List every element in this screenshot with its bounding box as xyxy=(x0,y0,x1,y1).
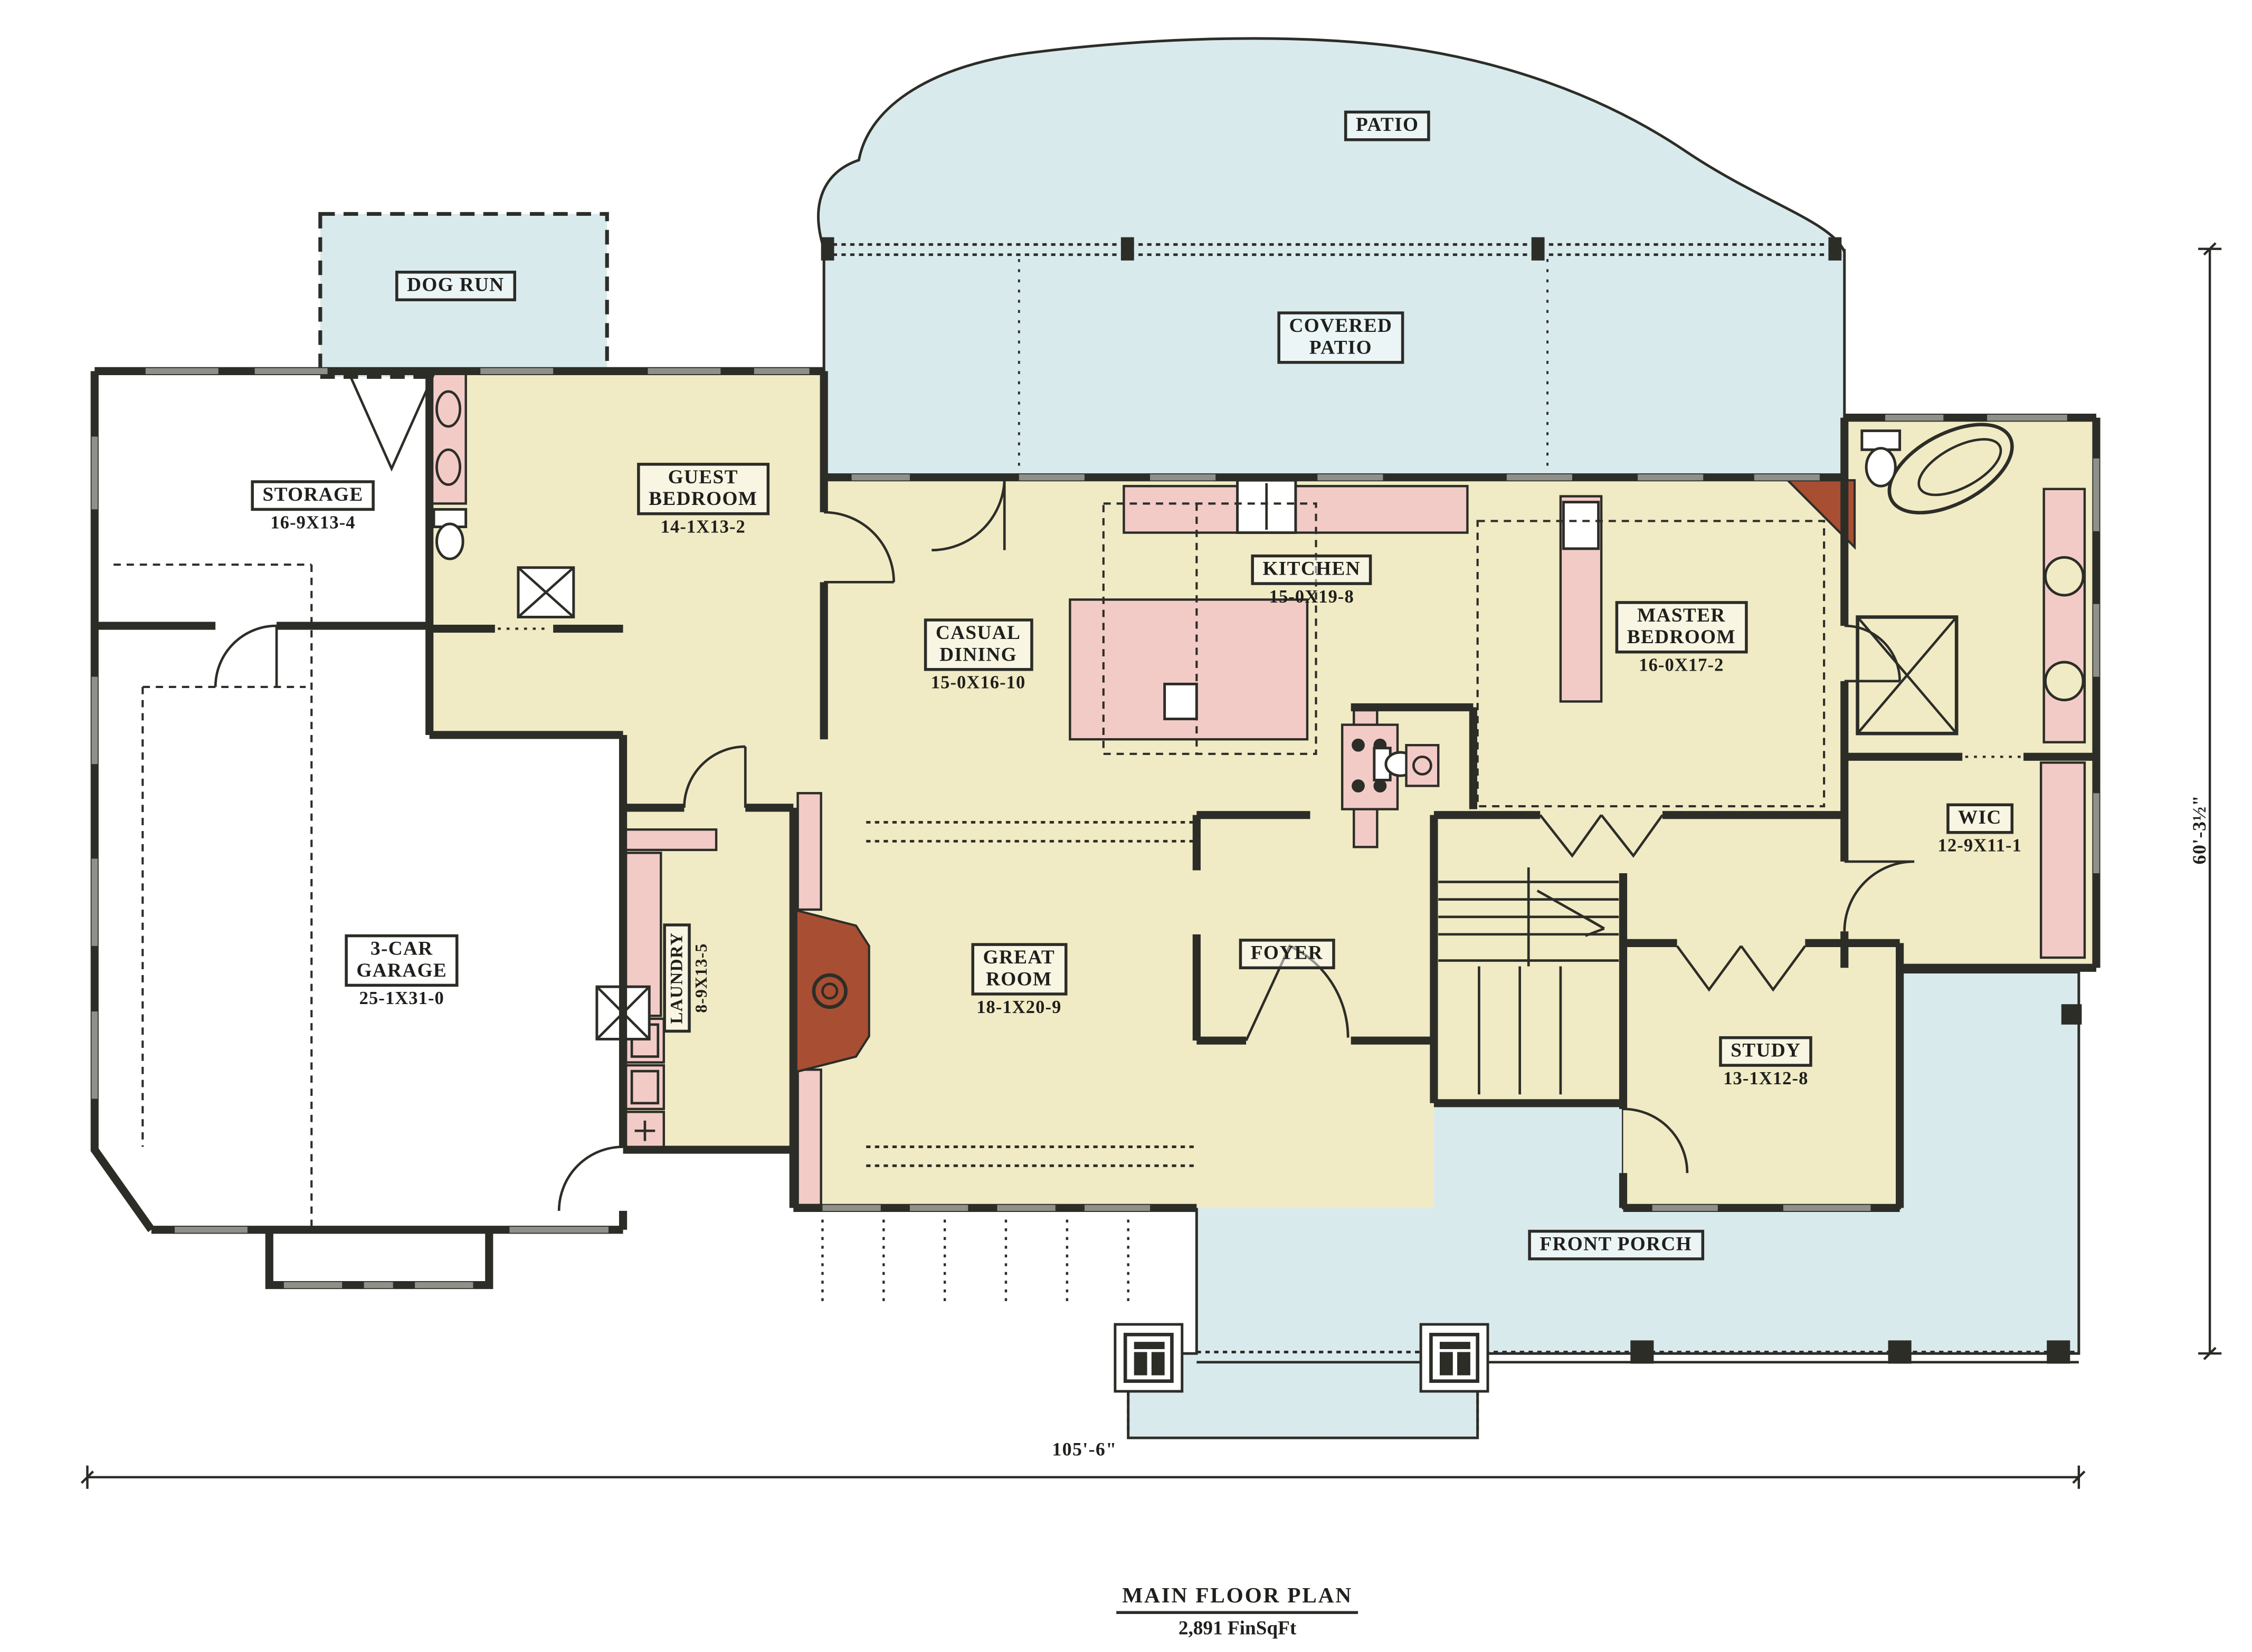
fridge xyxy=(1563,502,1598,549)
powder-sink xyxy=(1407,745,1439,786)
title-block: MAIN FLOOR PLAN 2,891 FinSqFt xyxy=(1116,1583,1358,1640)
label-great-room: GREAT ROOM 18-1X20-9 xyxy=(971,943,1067,1018)
label-guest-bedroom: GUEST BEDROOM 14-1X13-2 xyxy=(637,463,769,538)
laundry-name: LAUNDRY xyxy=(663,923,690,1033)
label-foyer: FOYER xyxy=(1239,939,1335,969)
foyer-name: FOYER xyxy=(1239,939,1335,969)
patio-name: PATIO xyxy=(1344,111,1430,141)
guest-bedroom-name: GUEST BEDROOM xyxy=(637,463,769,514)
wic-dims: 12-9X11-1 xyxy=(1938,837,2022,857)
label-storage: STORAGE 16-9X13-4 xyxy=(251,480,375,533)
label-dog-run: DOG RUN xyxy=(395,271,516,301)
label-casual-dining: CASUAL DINING 15-0X16-10 xyxy=(924,618,1033,693)
master-toilet xyxy=(1862,431,1900,450)
master-vanity xyxy=(2044,489,2085,742)
casual-dining-name: CASUAL DINING xyxy=(924,618,1033,670)
storage-name: STORAGE xyxy=(251,480,375,510)
front-porch-name: FRONT PORCH xyxy=(1528,1230,1704,1260)
label-garage: 3-CAR GARAGE 25-1X31-0 xyxy=(345,934,459,1009)
guest-bedroom-dims: 14-1X13-2 xyxy=(637,518,769,538)
laundry-dims: 8-9X13-5 xyxy=(693,943,711,1013)
great-room-name: GREAT ROOM xyxy=(971,943,1067,995)
wic-cabinet xyxy=(2041,762,2085,958)
label-front-porch: FRONT PORCH xyxy=(1528,1230,1704,1260)
garage-name: 3-CAR GARAGE xyxy=(345,934,459,986)
label-wic: WIC 12-9X11-1 xyxy=(1938,804,2022,857)
garage-dims: 25-1X31-0 xyxy=(345,989,459,1009)
storage-dims: 16-9X13-4 xyxy=(251,513,375,533)
covered-patio-name: COVERED PATIO xyxy=(1277,311,1404,363)
great-room-dims: 18-1X20-9 xyxy=(971,998,1067,1018)
master-bedroom-name: MASTER BEDROOM xyxy=(1616,601,1747,653)
kitchen-dims: 15-0X19-8 xyxy=(1251,588,1372,608)
casual-dining-dims: 15-0X16-10 xyxy=(924,673,1033,693)
study-dims: 13-1X12-8 xyxy=(1719,1069,1812,1090)
dog-run-name: DOG RUN xyxy=(395,271,516,301)
study-name: STUDY xyxy=(1719,1036,1812,1066)
label-laundry: LAUNDRY 8-9X13-5 xyxy=(663,923,711,1033)
patio-area xyxy=(819,39,1845,478)
plan-title: MAIN FLOOR PLAN xyxy=(1116,1585,1358,1614)
master-bedroom-dims: 16-0X17-2 xyxy=(1616,656,1747,676)
island-sink xyxy=(1165,684,1197,719)
label-master-bedroom: MASTER BEDROOM 16-0X17-2 xyxy=(1616,601,1747,676)
wic-name: WIC xyxy=(1946,804,2013,834)
overall-width-dimension: 105'-6" xyxy=(1052,1438,1117,1461)
plan-area: 2,891 FinSqFt xyxy=(1116,1617,1358,1640)
overall-height-dimension: 60'-3½" xyxy=(2188,795,2211,864)
label-kitchen: KITCHEN 15-0X19-8 xyxy=(1251,555,1372,608)
floor-plan-drawing xyxy=(0,0,2252,1652)
mud-bench xyxy=(622,829,716,850)
label-patio: PATIO xyxy=(1344,111,1430,141)
label-covered-patio: COVERED PATIO xyxy=(1277,311,1404,363)
floor-plan-page: PATIO DOG RUN COVERED PATIO STORAGE 16-9… xyxy=(0,0,2252,1652)
label-study: STUDY 13-1X12-8 xyxy=(1719,1036,1812,1090)
kitchen-name: KITCHEN xyxy=(1251,555,1372,585)
powder-room-fixtures xyxy=(1374,745,1438,786)
